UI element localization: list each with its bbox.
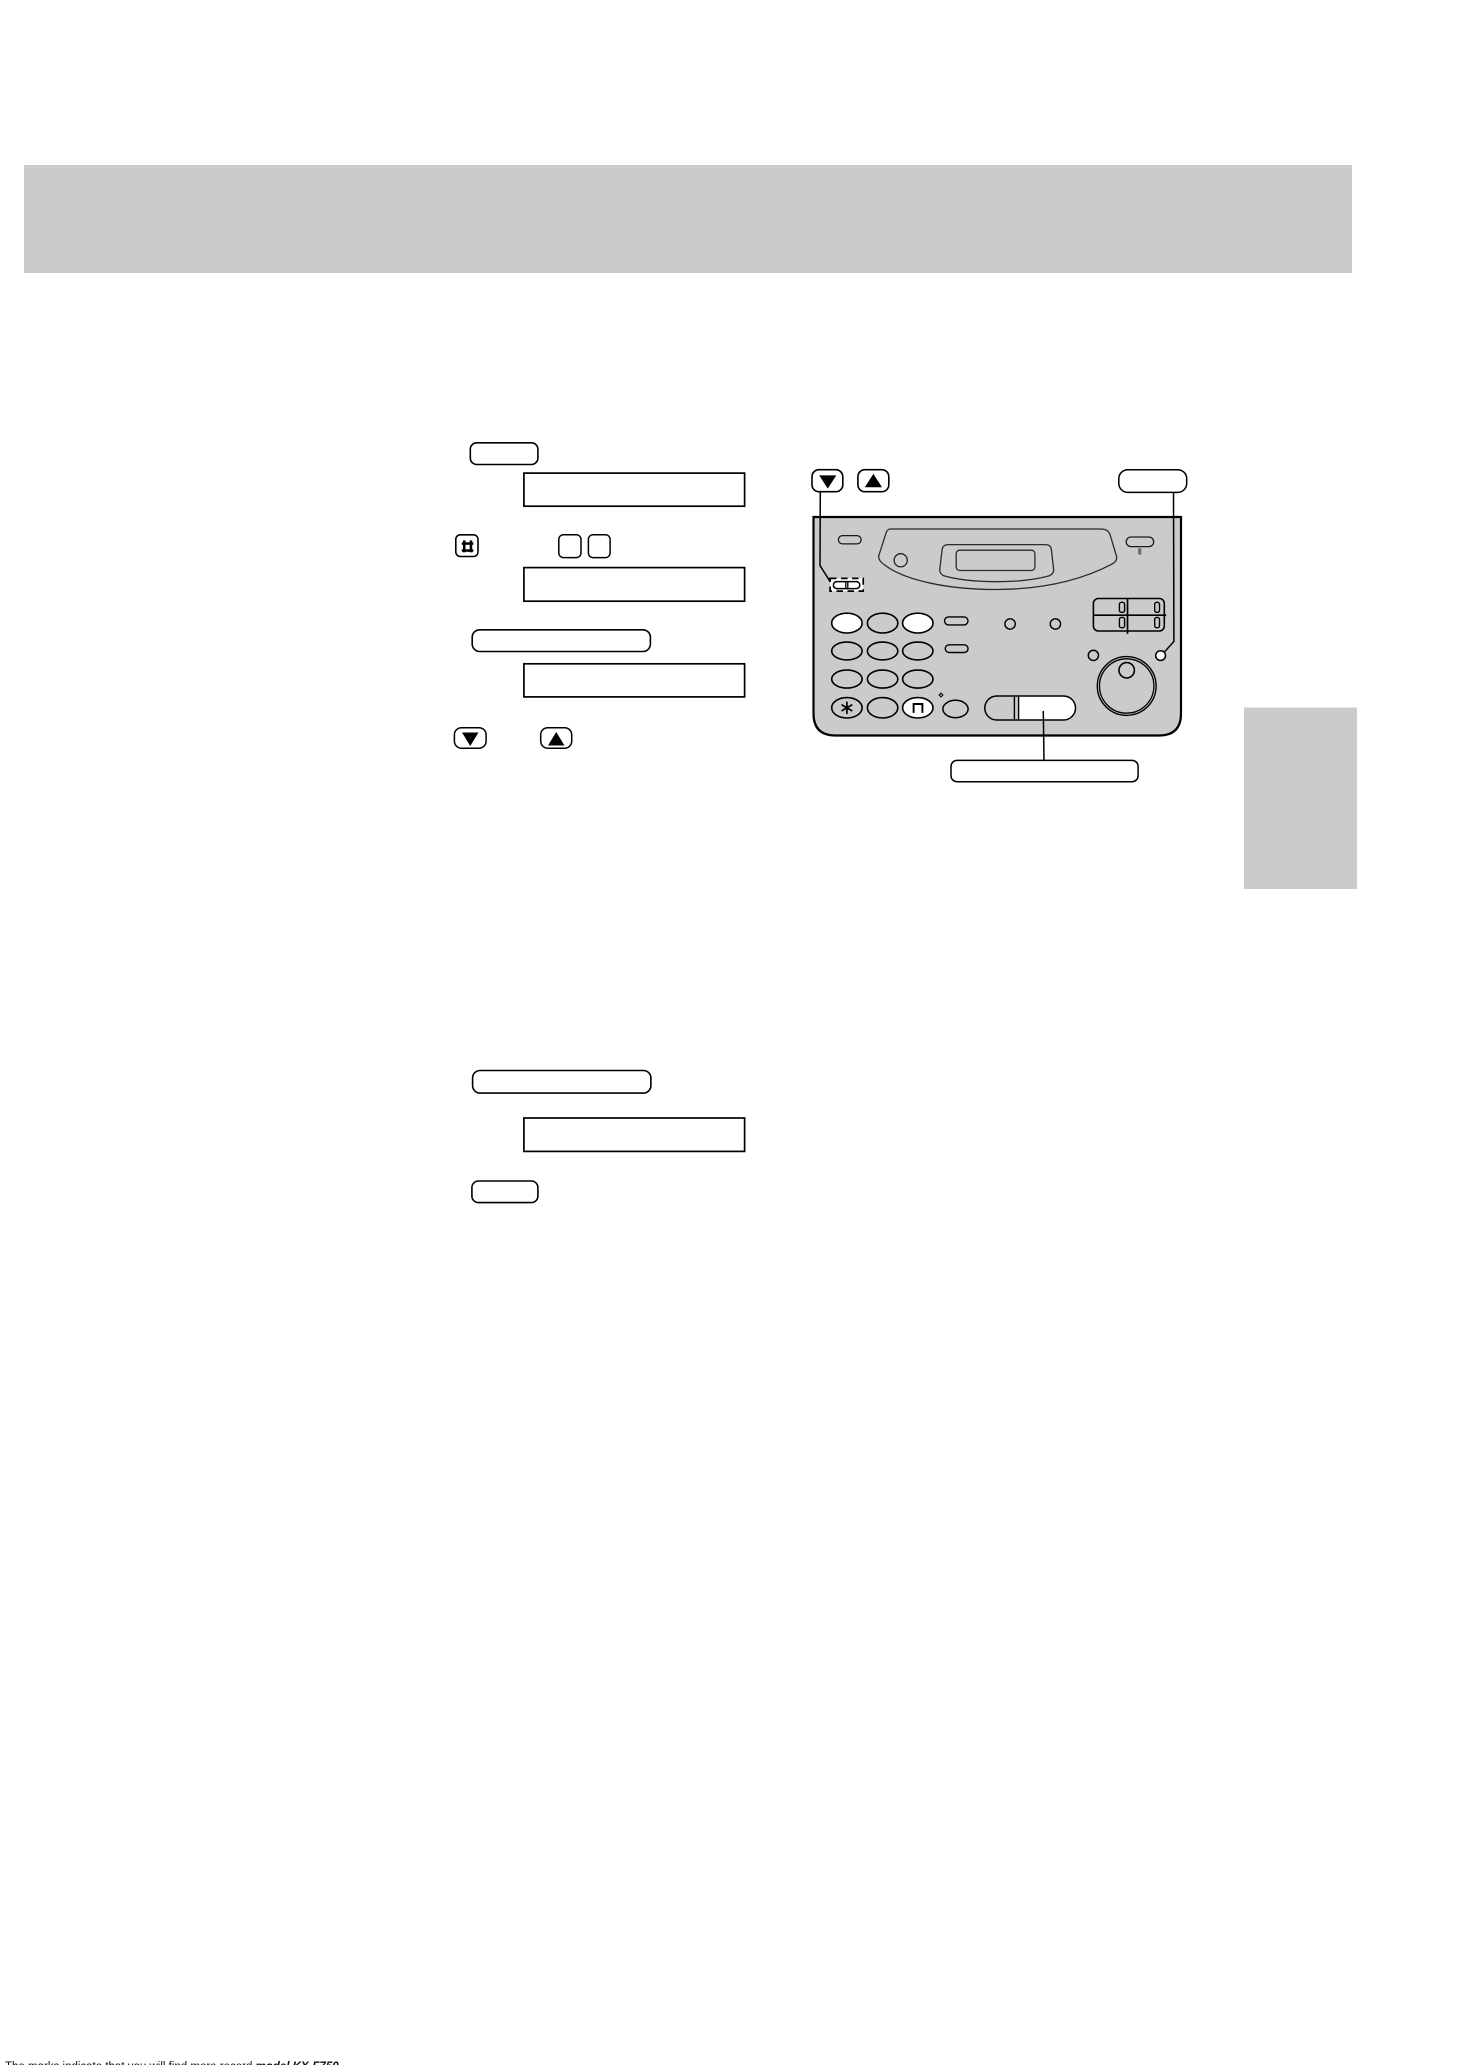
- svg-text:The marks indicate that you wi: The marks indicate that you will find mo…: [5, 2061, 339, 2065]
